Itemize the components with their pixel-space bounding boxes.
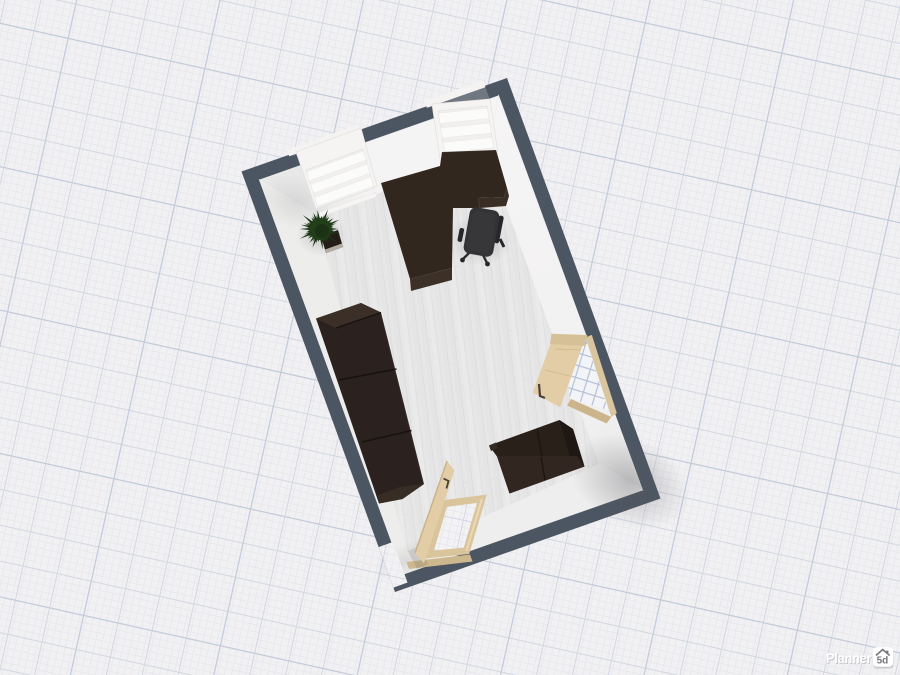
svg-text:Planner: Planner	[826, 650, 872, 666]
svg-text:5d: 5d	[877, 656, 889, 667]
